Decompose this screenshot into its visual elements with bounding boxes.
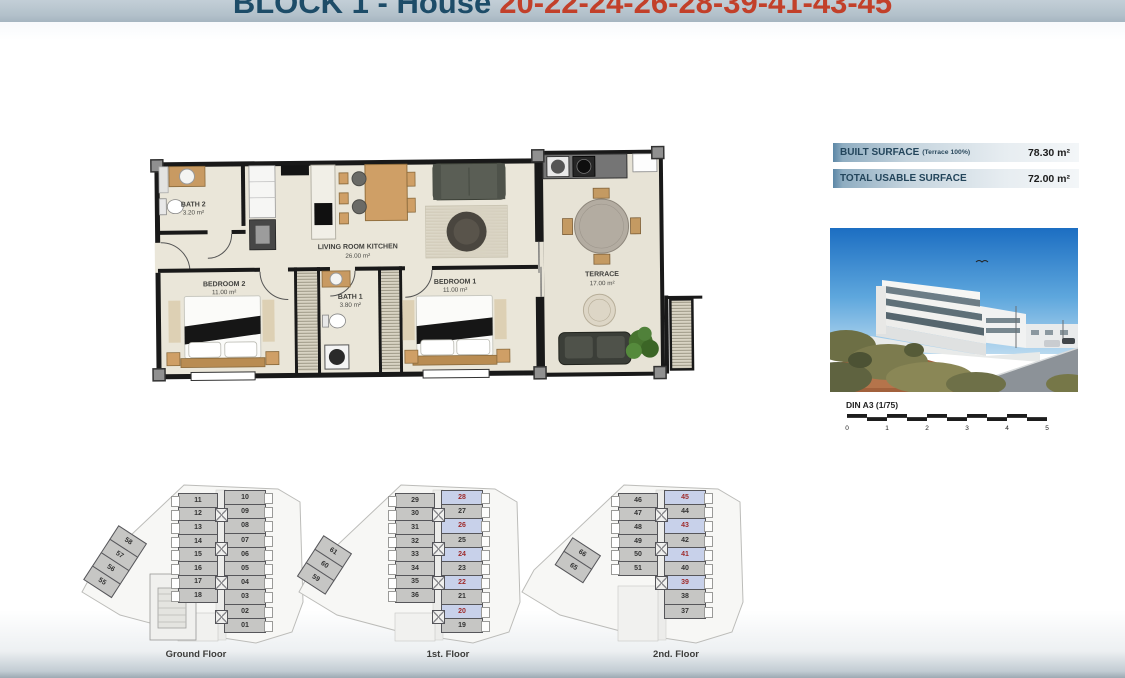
unit-cell: 35 <box>395 575 435 590</box>
surface-table: BUILT SURFACE (Terrace 100%) 78.30 m² TO… <box>833 143 1079 195</box>
unit-cell: 25 <box>441 533 483 548</box>
brochure-page: BLOCK 1 - House20-22-24-26-28-39-41-43-4… <box>0 0 1125 678</box>
unit-cell-highlighted: 41 <box>664 547 706 562</box>
unit-cell: 48 <box>618 520 658 535</box>
floor-label: 1st. Floor <box>348 649 548 660</box>
unit-cell: 21 <box>441 589 483 604</box>
unit-cell-highlighted: 24 <box>441 547 483 562</box>
floor-label: Ground Floor <box>96 649 296 660</box>
stairwell-box <box>655 508 668 522</box>
stairwell-box <box>655 576 668 590</box>
room-label-living: LIVING ROOM KITCHEN <box>318 243 398 251</box>
unit-cell: 13 <box>178 520 218 535</box>
stairwell-box <box>215 542 228 556</box>
unit-cell: 10 <box>224 490 266 505</box>
unit-cell: 30 <box>395 507 435 522</box>
unit-cell: 46 <box>618 493 658 508</box>
room-area-bedroom2: 11.00 m² <box>212 289 236 296</box>
right-column: 28272625242322212019 <box>441 491 483 633</box>
floor-label: 2nd. Floor <box>576 649 776 660</box>
unit-cell: 51 <box>618 561 658 576</box>
built-surface-note: (Terrace 100%) <box>922 149 970 156</box>
unit-cell: 27 <box>441 504 483 519</box>
room-area-living: 26.00 m² <box>345 253 370 260</box>
unit-cell: 02 <box>224 604 266 619</box>
scale-tick: 0 <box>845 425 849 432</box>
room-area-bath2: 3.20 m² <box>183 209 204 216</box>
right-column: 454443424140393837 <box>664 491 706 619</box>
unit-cell: 23 <box>441 561 483 576</box>
second-floor-plan: 6665 464748495051 454443424140393837 <box>506 482 756 652</box>
building-photo <box>830 228 1078 392</box>
room-label-terrace: TERRACE <box>585 271 619 278</box>
unit-cell: 44 <box>664 504 706 519</box>
unit-cell: 09 <box>224 504 266 519</box>
room-label-bedroom1: BEDROOM 1 <box>434 278 477 285</box>
stairwell-box <box>215 508 228 522</box>
usable-surface-row: TOTAL USABLE SURFACE 72.00 m² <box>833 169 1079 188</box>
built-surface-row: BUILT SURFACE (Terrace 100%) 78.30 m² <box>833 143 1079 162</box>
unit-cell: 31 <box>395 520 435 535</box>
scale-ruler: 0 1 2 3 4 5 <box>845 410 1050 432</box>
middle-column: 464748495051 <box>618 494 658 576</box>
unit-cell: 50 <box>618 547 658 562</box>
unit-cell: 17 <box>178 575 218 590</box>
header-bar: BLOCK 1 - House20-22-24-26-28-39-41-43-4… <box>0 0 1125 22</box>
scale-label: DIN A3 (1/75) <box>845 400 1055 410</box>
usable-surface-label: TOTAL USABLE SURFACE <box>833 173 967 184</box>
built-surface-value: 78.30 m² <box>1028 147 1079 159</box>
house-numbers: 20-22-24-26-28-39-41-43-45 <box>499 0 892 20</box>
unit-cell-highlighted: 45 <box>664 490 706 505</box>
unit-cell: 12 <box>178 507 218 522</box>
middle-column: 1112131415161718 <box>178 494 218 603</box>
scale-tick: 1 <box>885 425 889 432</box>
unit-cell: 16 <box>178 561 218 576</box>
stairwell-box <box>655 542 668 556</box>
stairwell-box <box>432 508 445 522</box>
unit-cell: 08 <box>224 518 266 533</box>
scale-tick: 5 <box>1045 425 1049 432</box>
unit-cell: 47 <box>618 507 658 522</box>
unit-cell: 06 <box>224 547 266 562</box>
stairwell-box <box>432 542 445 556</box>
unit-cell-highlighted: 26 <box>441 518 483 533</box>
right-column: 10090807060504030201 <box>224 491 266 633</box>
page-title: BLOCK 1 - House20-22-24-26-28-39-41-43-4… <box>0 0 1125 21</box>
unit-cell-highlighted: 43 <box>664 518 706 533</box>
stairwell-box <box>215 576 228 590</box>
unit-cell: 18 <box>178 588 218 603</box>
unit-cell-highlighted: 20 <box>441 604 483 619</box>
unit-cell: 33 <box>395 547 435 562</box>
unit-cell: 07 <box>224 533 266 548</box>
built-surface-label: BUILT SURFACE <box>833 147 919 158</box>
room-area-terrace: 17.00 m² <box>590 280 615 287</box>
room-label-bath2: BATH 2 <box>181 201 206 208</box>
room-area-bedroom1: 11.00 m² <box>443 287 467 294</box>
unit-cell-highlighted: 28 <box>441 490 483 505</box>
stairwell-box <box>432 610 445 624</box>
main-floor-plan: BATH 2 3.20 m² LIVING ROOM KITCHEN 26.00… <box>149 145 708 397</box>
scale-tick: 4 <box>1005 425 1009 432</box>
unit-cell: 32 <box>395 534 435 549</box>
block-title: BLOCK 1 - House <box>233 0 491 20</box>
unit-cell: 38 <box>664 589 706 604</box>
scale-tick: 3 <box>965 425 969 432</box>
unit-cell: 05 <box>224 561 266 576</box>
unit-cell: 11 <box>178 493 218 508</box>
unit-cell: 40 <box>664 561 706 576</box>
first-floor-plan: 616059 2930313233343536 2827262524232221… <box>283 482 533 652</box>
unit-cell: 34 <box>395 561 435 576</box>
room-label-bedroom2: BEDROOM 2 <box>203 281 246 288</box>
unit-cell: 37 <box>664 604 706 619</box>
unit-cell: 29 <box>395 493 435 508</box>
unit-cell: 42 <box>664 533 706 548</box>
scale-bar: DIN A3 (1/75) 0 1 2 3 4 5 <box>845 400 1055 434</box>
unit-cell: 36 <box>395 588 435 603</box>
floor-plan-drawing: BATH 2 3.20 m² LIVING ROOM KITCHEN 26.00… <box>149 145 708 397</box>
stairwell-box <box>432 576 445 590</box>
unit-cell: 03 <box>224 589 266 604</box>
usable-surface-value: 72.00 m² <box>1028 173 1079 185</box>
unit-cell: 04 <box>224 575 266 590</box>
unit-cell-highlighted: 22 <box>441 575 483 590</box>
room-label-bath1: BATH 1 <box>338 294 363 301</box>
unit-cell: 01 <box>224 618 266 633</box>
middle-column: 2930313233343536 <box>395 494 435 603</box>
ground-floor-plan: 58575655 1112131415161718 10090807060504… <box>66 482 316 652</box>
unit-cell-highlighted: 39 <box>664 575 706 590</box>
unit-cell: 15 <box>178 547 218 562</box>
stairwell-box <box>215 610 228 624</box>
room-area-bath1: 3.80 m² <box>340 302 361 309</box>
unit-cell: 14 <box>178 534 218 549</box>
unit-cell: 49 <box>618 534 658 549</box>
unit-cell: 19 <box>441 618 483 633</box>
scale-tick: 2 <box>925 425 929 432</box>
